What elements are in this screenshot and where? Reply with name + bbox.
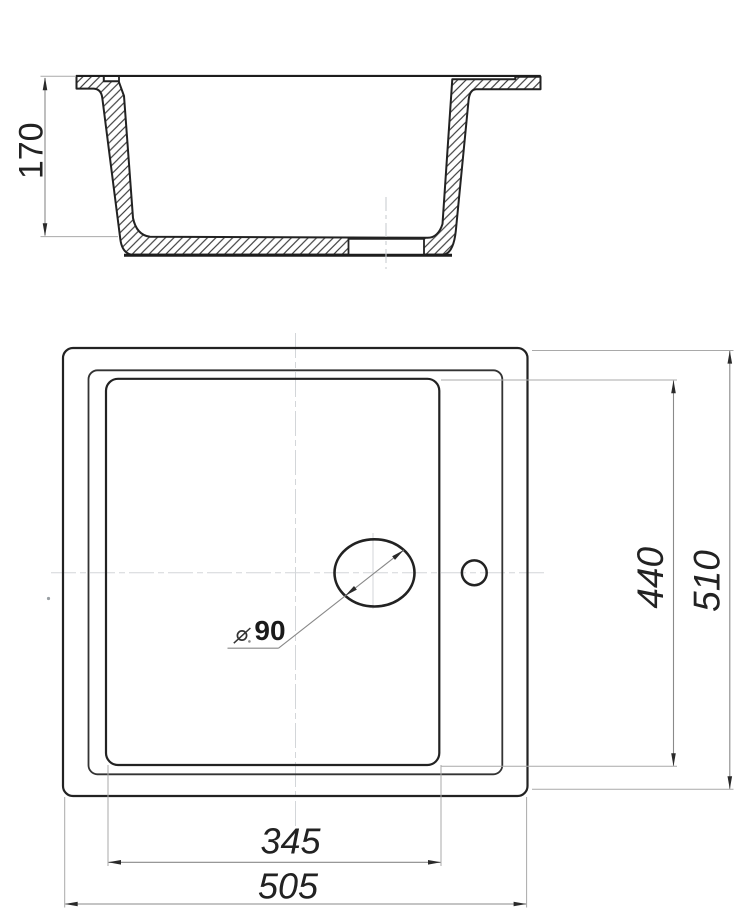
svg-text:170: 170 [13, 122, 51, 179]
svg-text:345: 345 [260, 820, 321, 861]
svg-text:90: 90 [254, 615, 285, 646]
svg-text:510: 510 [687, 550, 728, 612]
svg-text:440: 440 [630, 547, 671, 609]
svg-text:505: 505 [258, 865, 319, 906]
